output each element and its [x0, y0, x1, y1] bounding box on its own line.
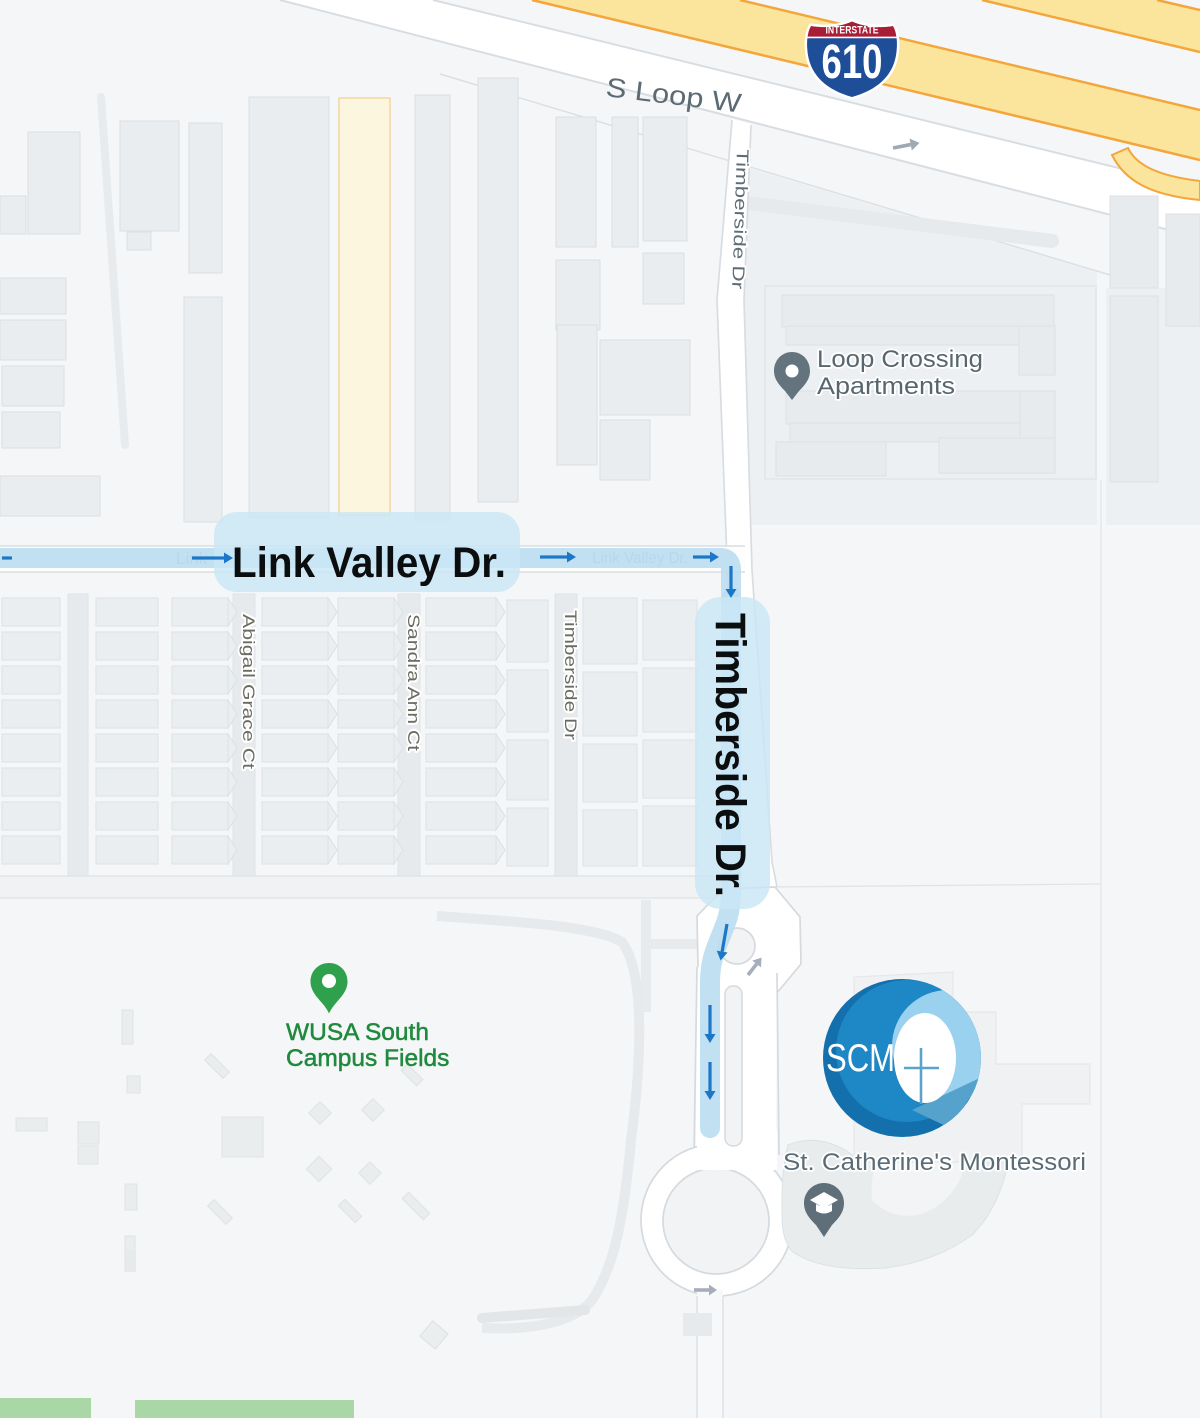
svg-text:Timberside Dr: Timberside Dr: [561, 610, 579, 741]
svg-text:Campus Fields: Campus Fields: [286, 1045, 449, 1072]
svg-text:WUSA South: WUSA South: [286, 1019, 429, 1046]
svg-text:Apartments: Apartments: [817, 373, 955, 400]
svg-text:Abigail Grace Ct: Abigail Grace Ct: [239, 614, 257, 770]
svg-text:Link Valley Dr.: Link Valley Dr.: [232, 539, 506, 587]
svg-text:Timberside Dr.: Timberside Dr.: [706, 613, 754, 897]
svg-text:Loop Crossing: Loop Crossing: [817, 346, 983, 373]
svg-text:St. Catherine's Montessori: St. Catherine's Montessori: [783, 1149, 1086, 1176]
svg-text:INTERSTATE: INTERSTATE: [826, 25, 879, 37]
svg-text:610: 610: [822, 36, 883, 89]
svg-text:SCM: SCM: [826, 1037, 895, 1080]
svg-text:Sandra Ann Ct: Sandra Ann Ct: [404, 614, 422, 752]
